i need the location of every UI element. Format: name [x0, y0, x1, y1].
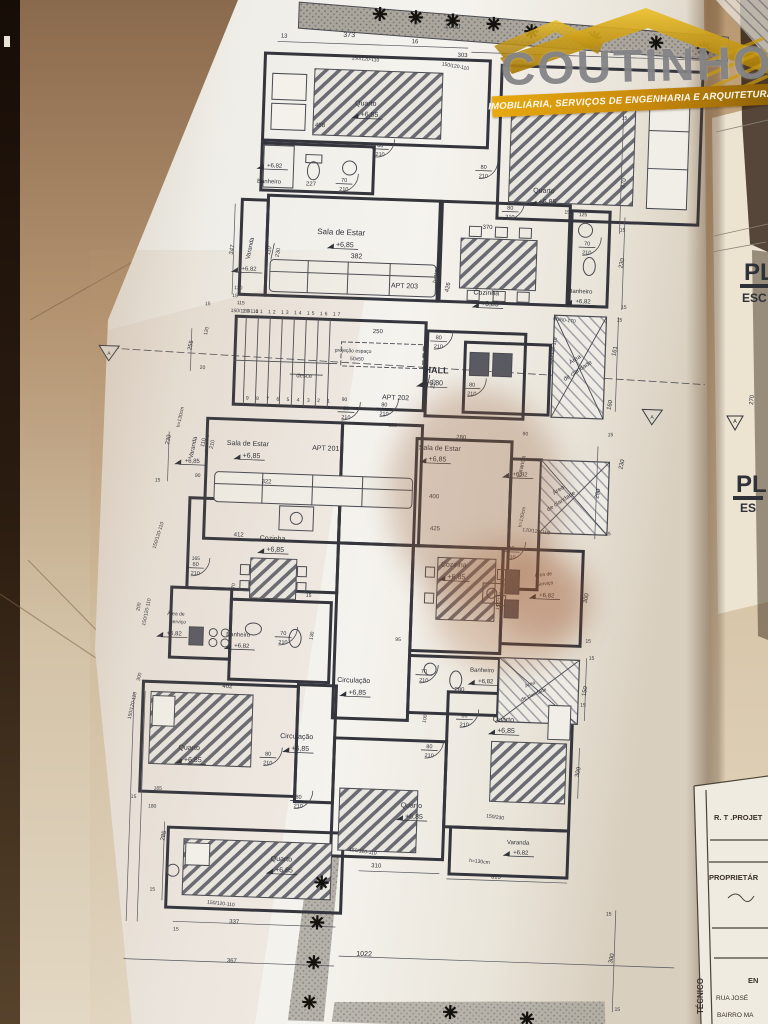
plan-label: Cozinha — [260, 535, 286, 543]
plan-label: +6,85 — [266, 546, 284, 554]
plan-label: 15 — [617, 317, 623, 323]
plant-symbol — [650, 36, 662, 48]
dining-table — [249, 558, 296, 600]
side-sheet-dim: 270 — [749, 394, 756, 405]
wardrobe — [548, 705, 571, 740]
plan-label: 315 — [491, 874, 502, 880]
svg-text:80: 80 — [436, 335, 442, 341]
plan-label: 90 — [342, 397, 348, 403]
plan-label: Sala de Estar — [419, 445, 462, 453]
sofa — [214, 472, 413, 509]
svg-text:80: 80 — [507, 206, 513, 212]
plan-label: Quarto — [178, 744, 200, 752]
pillow — [271, 103, 306, 130]
plan-label: 227 — [306, 182, 317, 188]
plan-label: 15 — [580, 702, 586, 708]
plan-label: +6,82 — [267, 163, 283, 170]
plant-symbol — [410, 11, 422, 23]
photo-edge-left — [0, 0, 20, 1024]
svg-text:80: 80 — [265, 751, 271, 757]
svg-text:80: 80 — [381, 402, 387, 408]
plan-label: 115 — [237, 300, 245, 306]
plan-label: Sala de Estar — [317, 227, 366, 238]
plan-label: 15 — [621, 305, 627, 311]
svg-text:70: 70 — [280, 631, 286, 637]
pillow — [152, 695, 175, 726]
plan-label: Quarto — [533, 187, 555, 195]
plan-label: desce — [296, 373, 313, 380]
side-sheet-title-1: PL — [744, 259, 768, 286]
plan-label: 370 — [482, 225, 493, 231]
plan-label: +6,85 — [185, 458, 201, 465]
plan-label: +6,82 — [513, 850, 529, 857]
title-block: R. T .PROJET PROPRIETÁR EN RUA JOSÉ BAIR… — [694, 776, 768, 1024]
plan-label: 280 — [454, 687, 465, 693]
plan-label: 50x50 — [350, 356, 364, 362]
svg-text:80: 80 — [508, 546, 514, 552]
plant-symbol — [487, 18, 499, 30]
title-block-rt: R. T .PROJET — [714, 813, 763, 822]
svg-text:80: 80 — [343, 406, 349, 412]
plan-label: Banheiro — [568, 289, 593, 296]
plan-label: +6,85 — [405, 813, 423, 821]
title-block-bairro: BAIRRO MA — [717, 1012, 754, 1019]
plan-label: Quarto — [355, 100, 377, 108]
plan-label: 15 — [131, 794, 137, 800]
plan-label: +6,85 — [242, 452, 260, 460]
title-block-vertical: TÉCNICO — [696, 978, 705, 1014]
plant-symbol — [521, 1013, 533, 1024]
plan-label: APT 201 — [312, 445, 339, 453]
svg-text:80: 80 — [377, 143, 383, 149]
plan-label: Circulação — [280, 733, 313, 741]
photographed-blueprint: 13373161060303150/120-110150/120-110150/… — [0, 0, 768, 1024]
plan-label: 95 — [395, 637, 401, 643]
plan-label: 15 — [585, 639, 591, 645]
side-sheet-scale-1: ESC — [742, 291, 767, 305]
plan-label: 1022 — [356, 951, 372, 959]
side-sheet-marker: A — [733, 419, 737, 425]
sofa — [269, 259, 436, 297]
plan-label: 322 — [261, 479, 272, 485]
svg-text:80: 80 — [461, 713, 467, 719]
plan-label: 15 — [606, 911, 612, 917]
plant-symbol — [444, 1006, 456, 1018]
plan-label: 20 — [200, 365, 206, 371]
title-block-prop: PROPRIETÁR — [709, 873, 759, 882]
floor-plan-sheet: 13373161060303150/120-110150/120-110150/… — [0, 0, 768, 1024]
plan-label: Quarto — [493, 716, 515, 724]
plant-symbol — [374, 8, 386, 20]
bed — [508, 102, 635, 206]
plan-label: Cozinha — [473, 289, 499, 297]
plant-symbol — [303, 996, 315, 1008]
svg-text:70: 70 — [341, 178, 347, 184]
plan-label: 412 — [234, 532, 245, 538]
wardrobe — [646, 90, 690, 209]
side-sheet-scale-2: ES — [740, 501, 756, 515]
appliance — [505, 570, 520, 594]
plan-label: +6,82 — [575, 299, 591, 306]
plan-label: 373 — [343, 32, 355, 39]
plan-label: 15 — [620, 228, 626, 234]
bed — [313, 69, 443, 139]
svg-text:60: 60 — [192, 562, 198, 568]
plan-label: Banheiro — [470, 668, 495, 675]
plan-label: Varanda — [507, 840, 530, 847]
plan-label: +6,85 — [336, 242, 354, 250]
plan-label: 90 — [195, 473, 201, 479]
plant-symbol — [315, 876, 327, 888]
plan-label: +6,85 — [360, 111, 378, 119]
svg-text:70: 70 — [421, 669, 427, 675]
plan-label: APT 202 — [382, 394, 409, 402]
appliance — [492, 353, 512, 377]
plan-label: 13 — [281, 34, 289, 40]
plan-label: APT 203 — [391, 283, 418, 291]
plan-label: Circulação — [337, 677, 370, 685]
bed — [490, 741, 567, 804]
plan-label: Sala de Estar — [227, 440, 270, 448]
plan-label: +6,82 — [241, 266, 257, 273]
plan-label: 250 — [373, 329, 384, 335]
plan-label: 310 — [371, 863, 382, 869]
plan-label: 15 — [306, 593, 312, 599]
svg-text:80: 80 — [295, 795, 301, 801]
plan-label: 458 — [315, 123, 326, 129]
svg-text:70: 70 — [584, 241, 590, 247]
title-block-rua: RUA JOSÉ — [716, 993, 749, 1002]
side-sheet-title-2: PL — [736, 471, 767, 498]
plan-label: 15 — [564, 210, 570, 216]
plan-label: 16 — [412, 39, 420, 45]
svg-text:80: 80 — [426, 744, 432, 750]
plant-symbol — [525, 25, 537, 37]
plan-label: Área de — [167, 610, 185, 618]
plan-label: 15 — [589, 656, 595, 662]
plant-symbol — [308, 956, 320, 968]
plan-label: 425 — [430, 526, 441, 532]
plan-label: 120 — [388, 423, 397, 429]
plan-label: 15 — [173, 926, 179, 932]
appliance — [189, 627, 204, 645]
plan-label: +6,85 — [291, 745, 309, 753]
plan-label: 400 — [429, 494, 440, 500]
plant-symbol — [588, 31, 600, 43]
plan-label: 130 — [234, 285, 243, 291]
plan-label: 280 — [456, 435, 467, 441]
plan-label: 15 — [205, 301, 211, 307]
plan-label: 382 — [350, 253, 362, 260]
plan-label: Serviço — [169, 619, 186, 626]
plan-label: 165 — [154, 786, 163, 792]
plan-label: Cozinha — [441, 561, 467, 569]
plan-label: 337 — [229, 919, 240, 925]
plan-label: +6,85 — [497, 728, 515, 736]
plan-label: +6,82 — [478, 679, 494, 686]
svg-text:80: 80 — [480, 165, 486, 171]
appliance — [469, 352, 489, 376]
plan-label: 15 — [155, 477, 161, 483]
plan-label: +6,85 — [275, 867, 293, 875]
plan-label: 15 — [232, 293, 238, 299]
plan-label: +6,85 — [481, 301, 499, 309]
plan-label: Banheiro — [226, 632, 251, 639]
plan-label: Quarto — [271, 856, 293, 864]
plan-label: +6,82 — [166, 631, 182, 638]
plan-label: +6,85 — [428, 456, 446, 464]
pillow — [185, 843, 210, 866]
plan-label: 402 — [222, 684, 233, 690]
plan-label: 125 — [579, 212, 588, 218]
title-block-en: EN — [748, 976, 758, 985]
plan-label: +6,85 — [538, 199, 556, 207]
plan-label: 90 — [522, 431, 528, 437]
dining-table — [459, 238, 537, 291]
plan-label: 367 — [227, 958, 238, 964]
plan-label: 15 — [605, 531, 611, 537]
plan-label: 180 — [148, 803, 157, 809]
plan-label: 15 — [149, 886, 155, 892]
plan-label: Quarto — [401, 802, 423, 810]
plan-label: 150/120-110 — [231, 308, 259, 315]
plan-label: +6,82 — [512, 472, 528, 479]
plan-label: 15 — [614, 1007, 620, 1013]
plant-symbol — [447, 14, 459, 26]
plan-label: +6,85 — [447, 574, 465, 582]
pillow — [272, 73, 307, 100]
plan-label: +6,85 — [184, 757, 202, 765]
plan-label: +6,85 — [348, 689, 366, 697]
plan-label: +6,82 — [234, 643, 250, 650]
plan-label: Banheiro — [257, 179, 282, 186]
plan-label: 15 — [608, 432, 614, 438]
edge-speck — [4, 36, 10, 47]
plan-label: HALL — [424, 365, 449, 376]
plan-label: +6,82 — [539, 593, 555, 600]
plan-label: 15 — [622, 116, 628, 122]
svg-text:80: 80 — [469, 382, 475, 388]
plan-label: 303 — [457, 53, 468, 59]
appliance — [504, 600, 519, 618]
plant-symbol — [311, 916, 323, 928]
